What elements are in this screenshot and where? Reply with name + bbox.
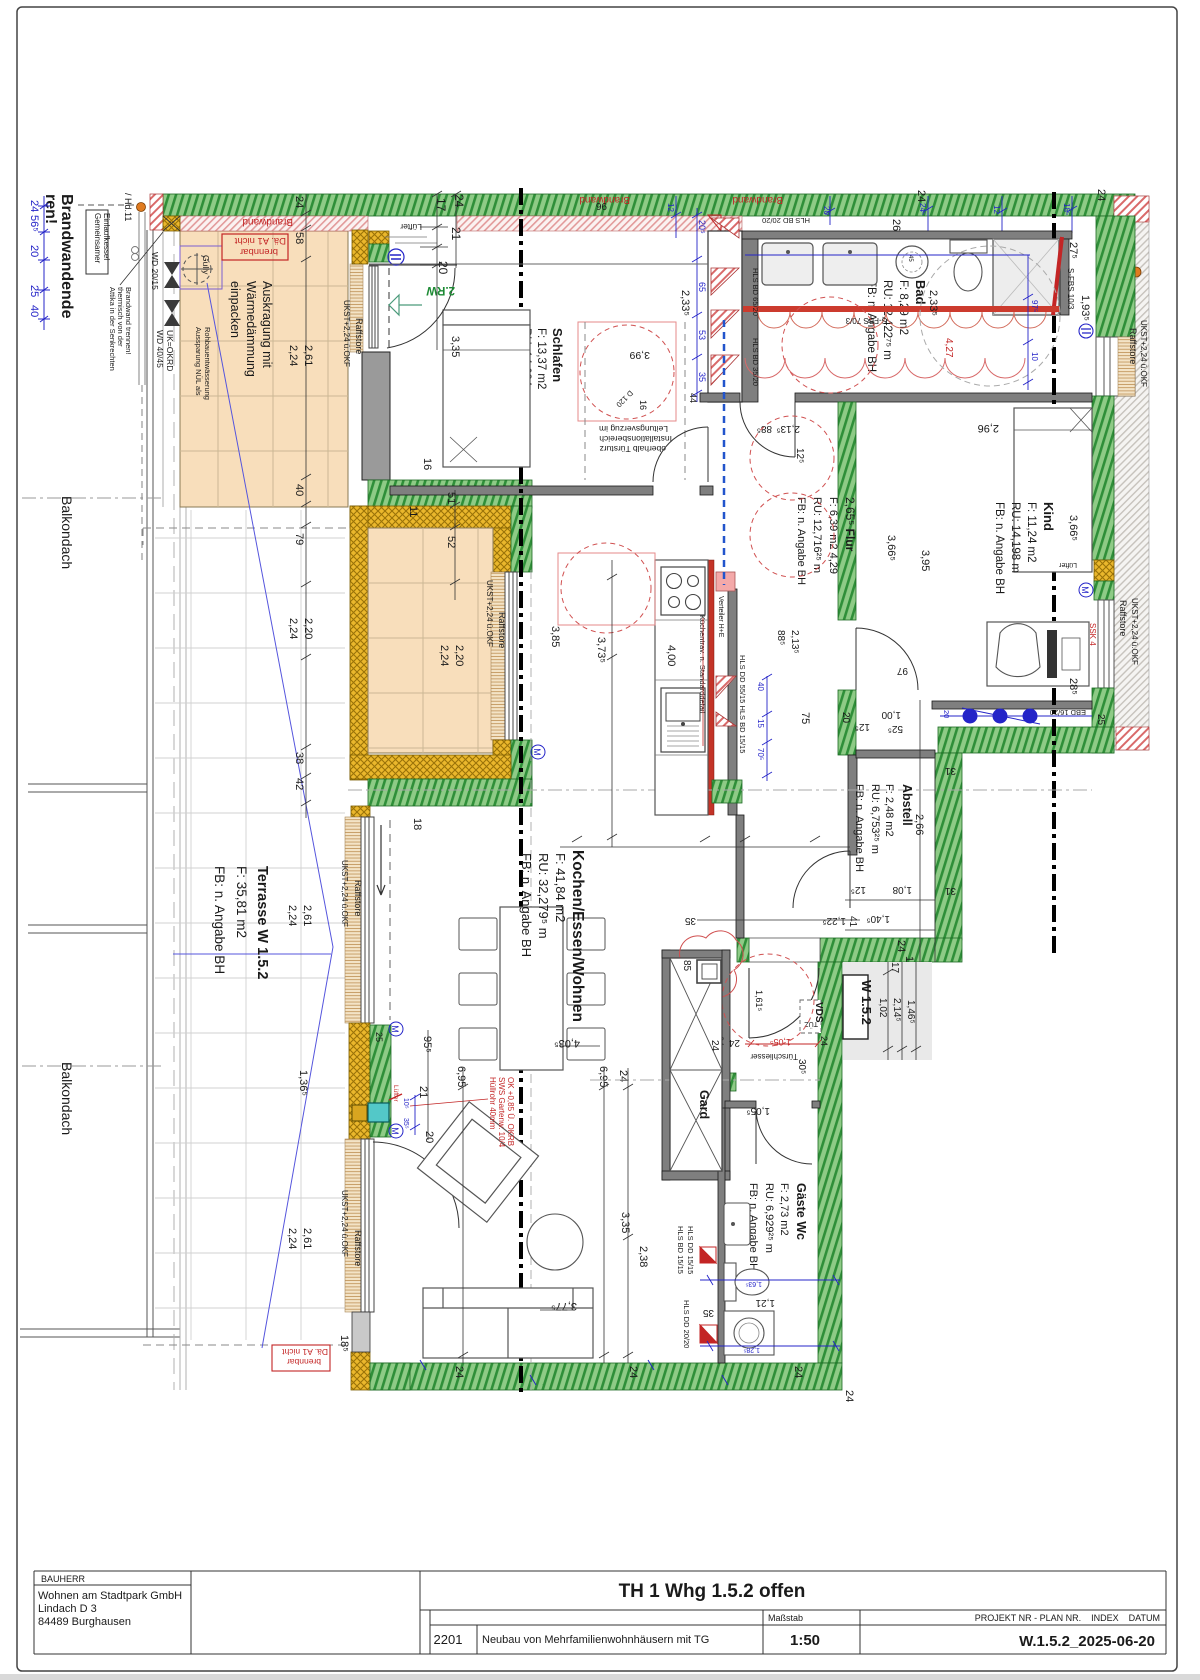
svg-text:HLS BD 20/20: HLS BD 20/20: [762, 216, 810, 225]
svg-text:45: 45: [907, 255, 913, 262]
svg-text:2,96: 2,96: [978, 422, 999, 434]
svg-text:FB: n. Angabe BH: FB: n. Angabe BH: [795, 497, 807, 585]
svg-text:Türschliesser: Türschliesser: [750, 1052, 798, 1061]
svg-text:1,36⁵: 1,36⁵: [297, 1070, 309, 1096]
svg-text:84489 Burghausen: 84489 Burghausen: [38, 1616, 131, 1628]
svg-text:Gemeinsamer: Gemeinsamer: [93, 213, 102, 264]
svg-text:Kind: Kind: [1041, 502, 1056, 531]
svg-text:Wärmedämmung: Wärmedämmung: [244, 281, 258, 377]
svg-text:UKST+2,24 ü.OKF: UKST+2,24 ü.OKF: [485, 580, 494, 647]
svg-text:95⁵: 95⁵: [421, 1036, 433, 1053]
svg-text:18⁵: 18⁵: [1062, 203, 1071, 215]
svg-text:Wohnen am Stadtpark GmbH: Wohnen am Stadtpark GmbH: [38, 1590, 182, 1602]
svg-text:TH 1 Whg 1.5.2 offen: TH 1 Whg 1.5.2 offen: [619, 1581, 806, 1602]
svg-text:3,35: 3,35: [449, 336, 461, 357]
svg-text:97⁵: 97⁵: [1030, 300, 1039, 312]
svg-text:M: M: [1080, 586, 1090, 594]
svg-text:Brandwand trennen!: Brandwand trennen!: [124, 287, 133, 355]
svg-text:21: 21: [417, 1086, 429, 1098]
svg-text:Dä. A1 nicht: Dä. A1 nicht: [234, 235, 286, 246]
svg-text:35⁵: 35⁵: [402, 1118, 409, 1129]
svg-text:24: 24: [792, 1366, 804, 1378]
svg-text:15: 15: [756, 719, 765, 728]
svg-text:85: 85: [681, 960, 692, 972]
svg-text:4,03⁵: 4,03⁵: [554, 1037, 580, 1049]
svg-text:24: 24: [709, 1040, 720, 1052]
svg-text:96: 96: [595, 200, 607, 211]
svg-text:UKST+2,24 ü.OKF: UKST+2,24 ü.OKF: [1130, 598, 1139, 665]
svg-text:FB: n. Angabe BH: FB: n. Angabe BH: [853, 784, 865, 872]
svg-text:Küchentrav. n. Standarddetail: Küchentrav. n. Standarddetail: [698, 615, 707, 714]
svg-text:1,93⁵: 1,93⁵: [1079, 295, 1091, 321]
svg-text:24⁵: 24⁵: [918, 203, 927, 215]
svg-text:11: 11: [407, 506, 419, 517]
svg-text:Balkondach: Balkondach: [59, 1062, 75, 1135]
svg-text:4,27: 4,27: [943, 338, 954, 358]
svg-text:S-FBS 10/3: S-FBS 10/3: [1066, 268, 1075, 310]
svg-text:M: M: [532, 748, 542, 756]
svg-text:Aussparung NÜL als: Aussparung NÜL als: [194, 327, 203, 396]
svg-text:F: 13,37 m2: F: 13,37 m2: [535, 328, 547, 389]
svg-text:24: 24: [293, 196, 305, 208]
svg-text:2,61: 2,61: [301, 1228, 313, 1249]
svg-text:SSK 4: SSK 4: [1088, 623, 1097, 646]
svg-text:24: 24: [28, 200, 40, 212]
svg-text:2,24: 2,24: [438, 645, 450, 666]
svg-text:10⁵: 10⁵: [402, 1098, 409, 1109]
svg-text:52⁵: 52⁵: [888, 723, 903, 734]
svg-text:Attika in der Senkrechten: Attika in der Senkrechten: [108, 287, 117, 371]
svg-text:FB: n. Angabe BH: FB: n. Angabe BH: [865, 280, 877, 372]
svg-text:F: 11,24 m2: F: 11,24 m2: [1025, 502, 1037, 563]
svg-text:17: 17: [434, 198, 448, 212]
svg-text:WD 40/45: WD 40/45: [155, 330, 165, 368]
svg-text:1,63⁵: 1,63⁵: [745, 1280, 762, 1287]
svg-text:12: 12: [666, 203, 675, 212]
svg-text:20: 20: [840, 712, 851, 724]
svg-text:79: 79: [293, 533, 305, 545]
svg-text:UKST+2,24 ü.OKF: UKST+2,24 ü.OKF: [340, 860, 349, 927]
svg-text:Raffstore: Raffstore: [1128, 328, 1138, 364]
svg-text:2,24: 2,24: [286, 905, 298, 926]
svg-text:20: 20: [436, 261, 450, 275]
svg-text:25: 25: [374, 1032, 384, 1042]
svg-text:28⁵: 28⁵: [1067, 678, 1079, 695]
svg-text:70⁵: 70⁵: [756, 748, 765, 760]
svg-text:3,95: 3,95: [919, 550, 931, 571]
svg-text:RU: 32,279⁵ m: RU: 32,279⁵ m: [536, 853, 551, 939]
svg-text:35: 35: [702, 1307, 714, 1318]
svg-text:35: 35: [697, 372, 707, 382]
svg-text:2,20: 2,20: [302, 618, 314, 639]
svg-text:2,14⁵: 2,14⁵: [891, 998, 902, 1022]
svg-text:1,05⁵: 1,05⁵: [746, 1105, 770, 1116]
svg-text:Balkondach: Balkondach: [59, 496, 75, 569]
svg-text:OK +0,85 Ü. OKRB: OK +0,85 Ü. OKRB: [506, 1077, 515, 1146]
svg-text:51: 51: [445, 492, 457, 504]
svg-text:3,73⁵: 3,73⁵: [595, 637, 607, 663]
svg-text:12⁵: 12⁵: [855, 721, 870, 732]
svg-text:2,61: 2,61: [301, 905, 313, 926]
svg-text:Lüfter: Lüfter: [400, 222, 422, 232]
svg-text:27⁵: 27⁵: [1067, 242, 1079, 259]
svg-text:BAUHERR: BAUHERR: [41, 1574, 86, 1584]
svg-text:53: 53: [697, 330, 707, 340]
svg-text:Bad: Bad: [913, 280, 928, 305]
svg-text:41: 41: [847, 916, 858, 928]
svg-text:24: 24: [895, 940, 907, 952]
svg-text:52: 52: [445, 536, 457, 548]
svg-text:12⁵: 12⁵: [851, 884, 866, 895]
svg-text:12⁵: 12⁵: [794, 448, 805, 463]
svg-text:brennbar: brennbar: [287, 1357, 321, 1367]
svg-text:97: 97: [896, 665, 908, 676]
svg-text:RU: 6,929²⁵ m: RU: 6,929²⁵ m: [763, 1183, 775, 1253]
svg-text:UKST+2,24 ü.OKF: UKST+2,24 ü.OKF: [342, 300, 351, 367]
svg-text:2,20: 2,20: [453, 645, 465, 666]
svg-text:2,61: 2,61: [302, 345, 314, 366]
svg-text:16: 16: [638, 400, 648, 410]
svg-text:10: 10: [1030, 352, 1039, 361]
svg-text:Rohbauentwässerung: Rohbauentwässerung: [203, 327, 212, 400]
svg-text:26: 26: [890, 219, 902, 231]
svg-text:Leitungsverzug im: Leitungsverzug im: [599, 424, 668, 434]
svg-text:3,85: 3,85: [549, 626, 561, 647]
svg-text:Lüfter: Lüfter: [392, 1085, 399, 1102]
svg-text:2,66: 2,66: [913, 814, 925, 835]
svg-text:FB: n. Angabe BH: FB: n. Angabe BH: [212, 866, 227, 974]
svg-text:Verteiler H+E: Verteiler H+E: [717, 596, 724, 638]
svg-text:3,99: 3,99: [629, 349, 650, 361]
svg-text:20: 20: [423, 1131, 435, 1143]
svg-text:RU: 14,198 m: RU: 14,198 m: [1009, 502, 1021, 573]
svg-text:F: 2,48 m2: F: 2,48 m2: [883, 784, 895, 837]
svg-text:Raffstore: Raffstore: [353, 1230, 363, 1266]
svg-text:2,33⁵: 2,33⁵: [679, 290, 691, 316]
svg-text:HLS DD 15/15: HLS DD 15/15: [686, 1226, 695, 1274]
svg-text:1,22⁵: 1,22⁵: [822, 915, 846, 926]
svg-text:Terrasse W 1.5.2: Terrasse W 1.5.2: [254, 866, 270, 979]
svg-text:1,40⁵: 1,40⁵: [866, 913, 890, 924]
svg-text:2,13⁵: 2,13⁵: [776, 423, 800, 434]
svg-text:24: 24: [728, 1037, 740, 1048]
svg-text:20⁵: 20⁵: [697, 220, 707, 234]
svg-text:UKST+2,24 ü.OKF: UKST+2,24 ü.OKF: [1139, 320, 1148, 387]
svg-text:Lindach D 3: Lindach D 3: [38, 1603, 97, 1615]
svg-text:HLS DD 20/20: HLS DD 20/20: [682, 1300, 691, 1348]
svg-text:12: 12: [992, 205, 1001, 214]
svg-text:UK=OKRD: UK=OKRD: [165, 330, 175, 371]
svg-text:WD 20/15: WD 20/15: [150, 252, 160, 290]
svg-text:1,46⁵: 1,46⁵: [905, 1000, 916, 1024]
svg-text:1,61⁵: 1,61⁵: [754, 990, 764, 1012]
svg-text:3,35: 3,35: [619, 1212, 631, 1233]
svg-text:FB: n. Angabe BH: FB: n. Angabe BH: [519, 853, 534, 957]
svg-text:42: 42: [293, 778, 305, 790]
svg-text:M: M: [390, 1127, 400, 1135]
svg-text:ren!: ren!: [42, 194, 59, 224]
svg-text:HLS BD 65/20: HLS BD 65/20: [751, 268, 760, 316]
svg-text:RU: 6,753²⁵ m: RU: 6,753²⁵ m: [869, 784, 881, 854]
svg-text:Auskragung mit: Auskragung mit: [260, 281, 274, 368]
svg-text:M: M: [390, 1025, 400, 1033]
svg-text:24: 24: [915, 190, 927, 202]
svg-text:6,95: 6,95: [597, 1066, 609, 1087]
svg-text:2,24: 2,24: [287, 618, 299, 639]
svg-text:16: 16: [421, 458, 433, 470]
svg-text:Einlaufkessel: Einlaufkessel: [102, 213, 111, 260]
svg-text:24: 24: [843, 1390, 855, 1402]
svg-text:18: 18: [411, 818, 423, 830]
svg-text:40: 40: [293, 484, 305, 496]
svg-text:2,13⁵: 2,13⁵: [789, 630, 800, 654]
svg-text:brennbar: brennbar: [240, 246, 278, 257]
svg-text:Brandwand: Brandwand: [732, 194, 783, 205]
svg-text:Raffstore: Raffstore: [354, 318, 364, 354]
svg-text:HLS BD 15/15: HLS BD 15/15: [676, 1226, 685, 1274]
svg-text:Hüllrohr 40mm: Hüllrohr 40mm: [488, 1077, 497, 1130]
svg-text:88⁵: 88⁵: [775, 630, 786, 645]
svg-text:1,02: 1,02: [877, 998, 888, 1018]
svg-text:3,66⁵: 3,66⁵: [885, 535, 897, 561]
svg-text:35: 35: [684, 915, 696, 926]
svg-text:Raffstore: Raffstore: [353, 880, 363, 916]
svg-text:56⁵: 56⁵: [28, 215, 40, 232]
svg-text:3,66⁵: 3,66⁵: [1067, 515, 1079, 541]
svg-text:40: 40: [756, 682, 765, 691]
svg-text:Gäste Wc: Gäste Wc: [794, 1183, 808, 1240]
svg-text:Abstell: Abstell: [900, 784, 914, 826]
svg-text:4,00: 4,00: [665, 645, 677, 666]
svg-text:24: 24: [627, 1366, 639, 1378]
svg-text:F: 6,39 m2 4,29: F: 6,39 m2 4,29: [827, 497, 839, 574]
svg-text:einpacken: einpacken: [228, 281, 242, 338]
svg-text:1,00: 1,00: [881, 709, 901, 720]
svg-text:FB: n. Angabe BH: FB: n. Angabe BH: [993, 502, 1005, 594]
svg-text:38: 38: [293, 752, 305, 764]
svg-text:W 1.5.2: W 1.5.2: [859, 980, 874, 1025]
svg-text:thermisch von der: thermisch von der: [116, 287, 125, 347]
svg-text:Brandwandende: Brandwandende: [58, 194, 75, 319]
svg-text:Gully: Gully: [201, 255, 211, 275]
svg-text:25: 25: [28, 285, 40, 297]
svg-text:24: 24: [452, 194, 466, 208]
svg-text:44: 44: [688, 393, 698, 403]
svg-text:31: 31: [944, 885, 956, 896]
svg-text:25: 25: [1095, 714, 1106, 726]
svg-text:18⁵: 18⁵: [338, 1335, 350, 1352]
svg-text:1:50: 1:50: [790, 1632, 820, 1649]
svg-text:20: 20: [942, 710, 951, 718]
svg-text:2,33⁵: 2,33⁵: [927, 290, 939, 316]
svg-text:88⁵: 88⁵: [757, 423, 772, 434]
svg-text:1,08: 1,08: [892, 884, 912, 895]
svg-text:VDS: VDS: [813, 1002, 824, 1023]
svg-text:S-FBS 70/3: S-FBS 70/3: [845, 316, 887, 325]
svg-text:Lüfter: Lüfter: [1058, 561, 1077, 568]
svg-text:6,95: 6,95: [455, 1066, 467, 1087]
svg-text:/ Hd.11: / Hd.11: [123, 193, 133, 221]
svg-text:2,24: 2,24: [287, 345, 299, 366]
svg-text:Kochen/Essen/Wohnen: Kochen/Essen/Wohnen: [569, 850, 586, 1022]
svg-text:HLS BD 35/20: HLS BD 35/20: [751, 338, 760, 386]
svg-text:17: 17: [889, 962, 900, 974]
svg-text:31: 31: [944, 765, 956, 776]
svg-text:Maßstab: Maßstab: [768, 1613, 803, 1623]
svg-text:F: 2,73 m2: F: 2,73 m2: [778, 1183, 790, 1236]
svg-text:20: 20: [28, 245, 40, 257]
svg-text:58: 58: [293, 232, 305, 244]
svg-text:2,38: 2,38: [637, 1246, 649, 1267]
svg-text:EBD 16/20: EBD 16/20: [1050, 708, 1086, 717]
svg-text:30⁵: 30⁵: [796, 1059, 807, 1074]
svg-text:2201: 2201: [434, 1632, 463, 1647]
svg-text:Raffstore: Raffstore: [497, 612, 507, 648]
svg-text:Neubau von Mehrfamilienwohnhäu: Neubau von Mehrfamilienwohnhäusern mit T…: [482, 1634, 709, 1646]
svg-text:Brandwand: Brandwand: [242, 216, 293, 227]
svg-text:24: 24: [1095, 189, 1107, 201]
svg-text:Dä. A1 nicht: Dä. A1 nicht: [282, 1347, 328, 1357]
svg-text:2.RW: 2.RW: [426, 284, 455, 296]
svg-text:24: 24: [819, 1036, 829, 1046]
svg-text:UKST+2,24 ü.OKF: UKST+2,24 ü.OKF: [340, 1190, 349, 1257]
svg-text:Raffstore: Raffstore: [1118, 600, 1128, 636]
svg-text:24: 24: [453, 1366, 465, 1378]
svg-text:20: 20: [822, 206, 831, 215]
svg-text:1,21: 1,21: [755, 1297, 775, 1308]
svg-text:2,24: 2,24: [286, 1228, 298, 1249]
svg-text:oberhalb Türsturz: oberhalb Türsturz: [600, 444, 666, 454]
svg-text:40: 40: [28, 305, 40, 317]
svg-text:PROJEKT NR - PLAN NR. IND: PROJEKT NR - PLAN NR. INDEX DATUM: [975, 1613, 1160, 1623]
svg-text:Installationsbereich: Installationsbereich: [599, 434, 672, 444]
svg-text:F: 35,81 m2: F: 35,81 m2: [234, 866, 249, 938]
svg-text:75: 75: [799, 712, 811, 724]
svg-text:2,65⁵ Flur: 2,65⁵ Flur: [843, 497, 857, 552]
svg-text:65: 65: [697, 282, 707, 292]
svg-text:Gard: Gard: [697, 1090, 711, 1119]
svg-text:1,28⁵: 1,28⁵: [743, 1346, 760, 1353]
svg-text:W.1.5.2_2025-06-20: W.1.5.2_2025-06-20: [1019, 1633, 1155, 1650]
svg-text:SWS Gartenw. 10/4: SWS Gartenw. 10/4: [497, 1077, 506, 1148]
svg-text:RU: 12,716²⁵ m: RU: 12,716²⁵ m: [811, 497, 823, 573]
svg-text:Schlafen: Schlafen: [550, 328, 565, 382]
svg-text:HLS DD 55/15 HLS BD 15/15: HLS DD 55/15 HLS BD 15/15: [738, 655, 747, 753]
svg-text:F: 41,84 m2: F: 41,84 m2: [553, 853, 568, 922]
